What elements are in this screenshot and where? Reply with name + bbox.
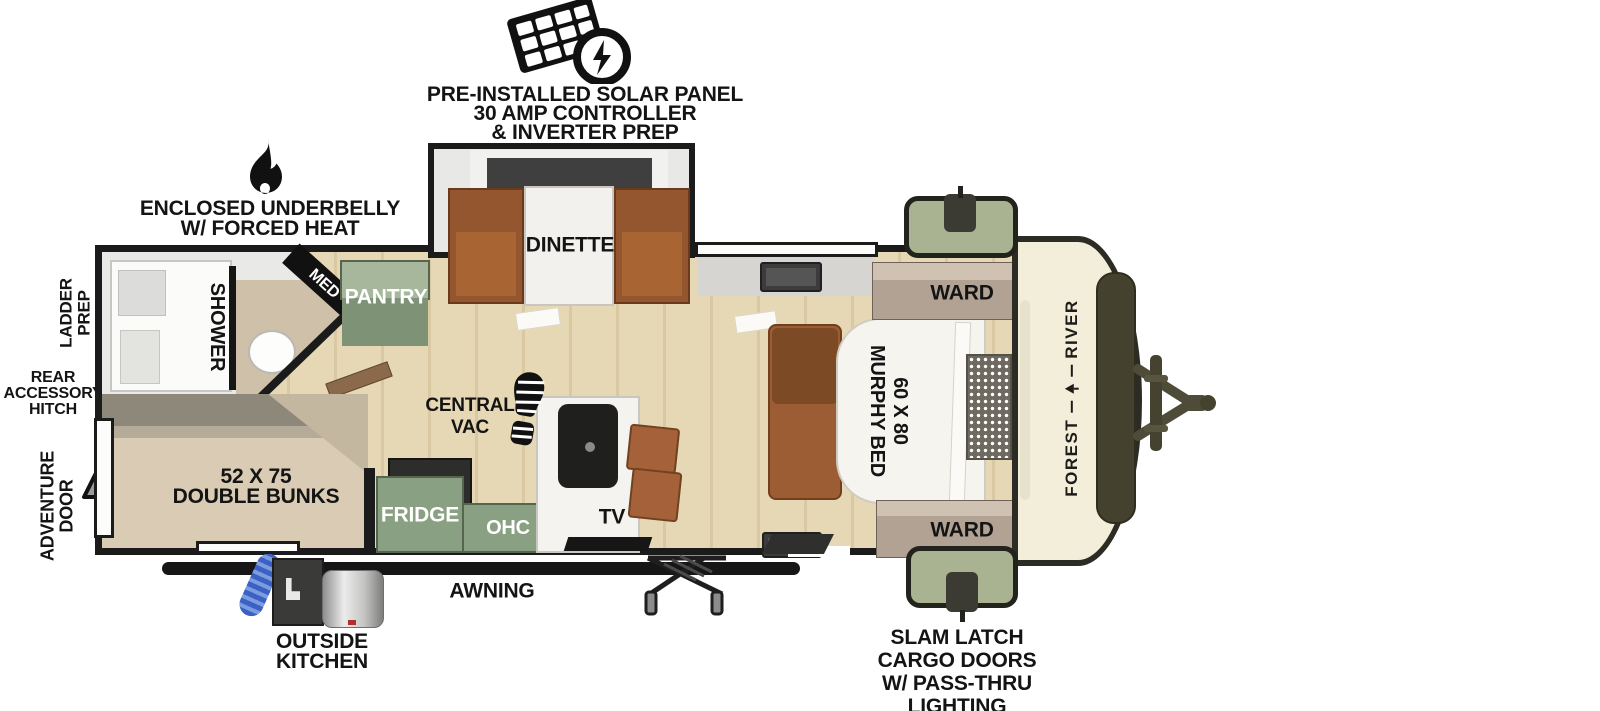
tank-valve (348, 620, 356, 625)
murphy-bed-line2: MURPHY BED (865, 345, 888, 477)
shower-bench (120, 330, 160, 384)
slam-latch-line4: LIGHTING (878, 695, 1037, 711)
slam-latch-line1: SLAM LATCH (878, 626, 1037, 649)
sink-drain (585, 442, 595, 452)
shower-door (229, 266, 236, 390)
murphy-bed-line1: 60 X 80 (888, 345, 911, 477)
tv-label: TV (599, 507, 625, 530)
wardrobe-bottom-face (877, 501, 1015, 516)
ward-bottom-label: WARD (930, 520, 993, 543)
outside-kitchen-line2: KITCHEN (276, 651, 368, 674)
flame-icon (243, 139, 289, 199)
murphy-bed-label: 60 X 80 MURPHY BED (865, 345, 911, 477)
solar-panel-icon (505, 0, 640, 84)
front-cap-seam (1020, 300, 1030, 500)
adventure-door-line1: ADVENTURE (39, 451, 58, 561)
adventure-door-line2: DOOR (58, 451, 77, 561)
ladder-prep-line1: LADDER (58, 278, 76, 348)
rear-hitch-line3: HITCH (4, 402, 103, 418)
logo-dash-left (1071, 401, 1073, 413)
trailer-hitch (1132, 345, 1217, 460)
entry-door-panel (762, 534, 834, 554)
slam-latch-line3: W/ PASS-THRU (878, 672, 1037, 695)
dinette-cushion-left (456, 232, 516, 296)
murphy-headboard-perforated (966, 354, 1012, 460)
bunk-bottom-window (196, 541, 300, 554)
rear-hitch-line1: REAR (4, 370, 103, 386)
floorplan-canvas: PRE-INSTALLED SOLAR PANEL 30 AMP CONTROL… (0, 0, 1600, 711)
dinette-cushion-right (622, 232, 682, 296)
entry-steps (638, 550, 733, 618)
ladder-prep-callout: LADDER PREP (58, 278, 95, 348)
brand-river: RIVER (1063, 299, 1081, 358)
dinette-label: DINETTE (526, 235, 614, 258)
ladder-prep-line2: PREP (76, 278, 94, 348)
solar-callout-line3: & INVERTER PREP (491, 122, 678, 145)
cargo-bottom-handle-stem (960, 610, 965, 622)
adventure-door-callout: ADVENTURE DOOR (39, 451, 78, 561)
brand-forest: FOREST (1063, 419, 1081, 497)
adventure-door-window (94, 418, 114, 538)
slam-latch-line2: CARGO DOORS (878, 649, 1037, 672)
cargo-door-top-handle (944, 194, 976, 232)
roof-vent-top (760, 262, 822, 292)
tv-unit (564, 537, 653, 551)
bunk-closet-wall (364, 468, 375, 553)
central-vac-line2: VAC (451, 418, 489, 439)
slam-latch-callout: SLAM LATCH CARGO DOORS W/ PASS-THRU LIGH… (878, 626, 1037, 711)
awning-label: AWNING (449, 581, 534, 604)
underbelly-callout-line2: W/ FORCED HEAT (181, 218, 360, 241)
central-vac-line1: CENTRAL (425, 396, 514, 417)
logo-dash-right (1071, 365, 1073, 377)
galley-top-window (695, 242, 878, 257)
bunks-label-line2: DOUBLE BUNKS (173, 486, 340, 509)
rear-hitch-line2: ACCESSORY (4, 386, 103, 402)
island-stool-1 (626, 424, 681, 475)
forest-river-tree-icon (1065, 383, 1079, 395)
forest-river-logo: FOREST RIVER (1063, 299, 1081, 496)
shower-label: SHOWER (205, 283, 227, 372)
ward-top-label: WARD (930, 283, 993, 306)
cargo-door-bottom-handle (946, 572, 978, 612)
cargo-top-handle-stem (958, 186, 963, 198)
murphy-sofa-cushion (772, 328, 838, 404)
pantry-label: PANTRY (345, 287, 428, 310)
fridge-label: FRIDGE (381, 505, 459, 528)
island-stool-2 (628, 468, 683, 523)
shower-pan (118, 270, 166, 316)
wardrobe-top-face (873, 263, 1015, 280)
front-cap-window (1096, 272, 1136, 524)
rear-accessory-hitch-callout: REAR ACCESSORY HITCH (4, 370, 103, 418)
ohc-label: OHC (486, 518, 530, 540)
